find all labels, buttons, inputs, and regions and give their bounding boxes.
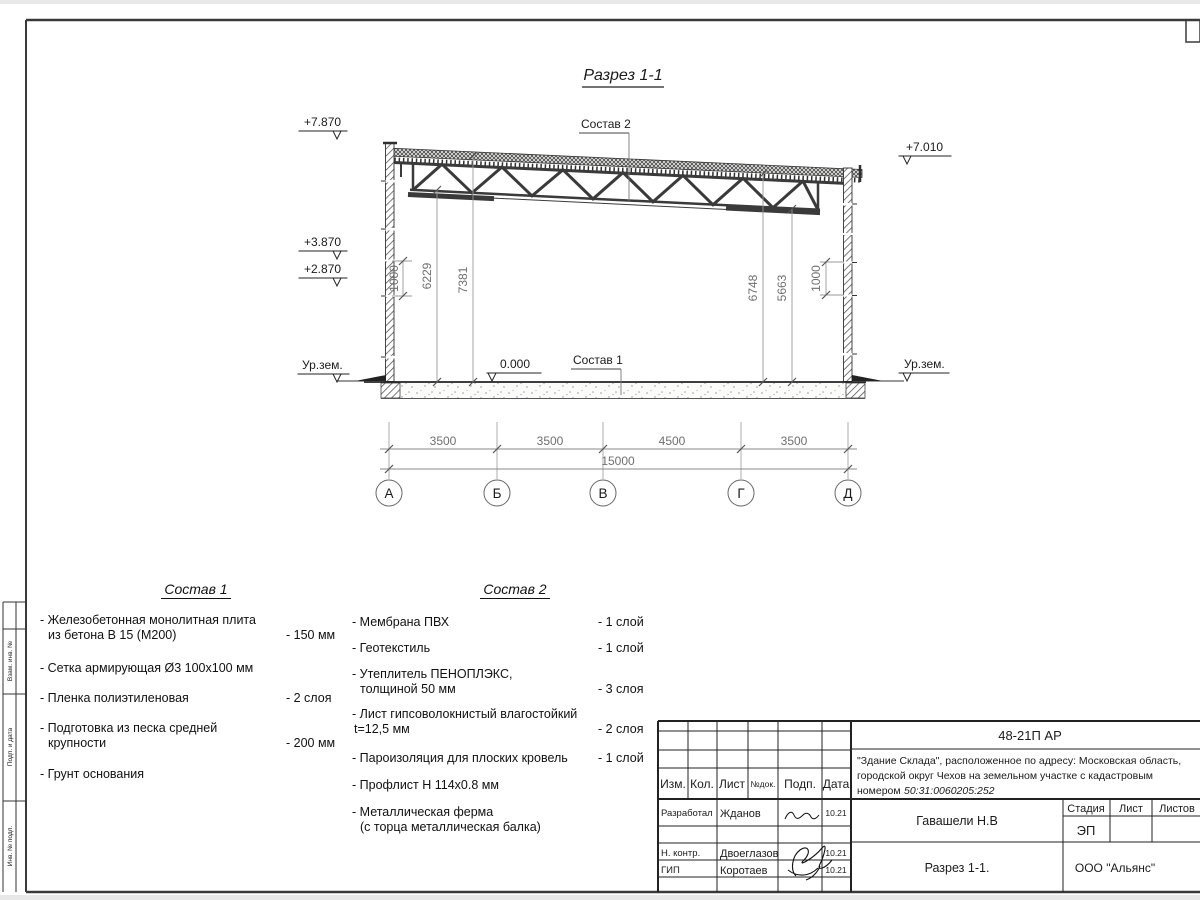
sostav2-item6-line1: - Профлист Н 114х0.8 мм: [352, 778, 598, 793]
sostav1-item3-line1: - Пленка полиэтиленовая: [40, 691, 286, 706]
ref-sostav2-label: Состав 2: [581, 117, 631, 131]
axis-label-b: Б: [493, 486, 502, 501]
tb-object-line3-prefix: номером: [857, 785, 901, 797]
tb-sheets-col: Листов: [1159, 803, 1195, 815]
zero-level-mark: 0.000: [500, 357, 530, 371]
total-dim: 15000: [601, 454, 635, 468]
tb-col-podp: Подп.: [784, 777, 816, 791]
list-item: - Подготовка из песка средней крупности …: [40, 721, 352, 751]
sostav2-item4-line1: - Лист гипсоволокнистый влагостойкий: [352, 707, 598, 722]
sostav2-item7-line1: - Металлическая ферма: [352, 805, 598, 820]
sostav1-item1-line1: - Железобетонная монолитная плита: [40, 613, 286, 628]
chain-dim-3: 4500: [659, 434, 686, 448]
tb-cadastre-number: 50:31:0060205:252: [904, 785, 995, 797]
ground-label-left: Ур.зем.: [302, 358, 343, 372]
elev-2870: +2.870: [304, 262, 341, 276]
frame-corner-box: [1186, 20, 1200, 42]
sostav1-item3-value: - 2 слоя: [286, 691, 331, 706]
tb-col-data: Дата: [823, 777, 850, 791]
sostav1-heading: Состав 1: [40, 582, 352, 597]
sostav1-item1-value: - 150 мм: [286, 628, 335, 643]
tb-approved-by: Гавашели Н.В: [916, 814, 998, 828]
tb-object-line1: "Здание Склада", расположенное по адресу…: [857, 755, 1181, 767]
tb-organization: ООО "Альянс": [1075, 861, 1155, 875]
list-item: - Лист гипсоволокнистый влагостойкий t=1…: [352, 707, 678, 737]
list-item: - Металлическая ферма (с торца металличе…: [352, 805, 678, 835]
tb-name-zhdanov: Жданов: [720, 808, 761, 820]
sostav1-note: Состав 1 - Железобетонная монолитная пли…: [40, 582, 352, 782]
sostav2-item2-line1: - Геотекстиль: [352, 641, 598, 656]
tb-stage-value: ЭП: [1077, 823, 1096, 838]
sostav1-item2-line1: - Сетка армирующая Ø3 100х100 мм: [40, 661, 286, 676]
vertical-dimensions: 1000 6229 7381 6748 5663 1000: [387, 152, 844, 386]
list-item: - Грунт основания: [40, 767, 352, 782]
list-item: - Мембрана ПВХ - 1 слой: [352, 615, 678, 630]
chain-dim-1: 3500: [430, 434, 457, 448]
chain-dim-2: 3500: [537, 434, 564, 448]
sostav2-item2-value: - 1 слой: [598, 641, 644, 656]
frame-label-inv: Инв. № подл.: [7, 826, 14, 867]
vdim-5663: 5663: [775, 274, 789, 301]
vdim-6748: 6748: [746, 274, 760, 301]
axis-label-g: Г: [737, 486, 745, 501]
sostav1-item1-line2: из бетона В 15 (М200): [40, 628, 286, 643]
axis-label-v: В: [598, 486, 607, 501]
vdim-1000-left: 1000: [387, 265, 401, 292]
list-item: - Пароизоляция для плоских кровель - 1 с…: [352, 751, 678, 766]
ground-label-right: Ур.зем.: [904, 357, 945, 371]
vdim-7381: 7381: [456, 266, 470, 293]
tb-col-kol: Кол.: [690, 777, 714, 791]
vdim-1000-right: 1000: [809, 265, 823, 292]
sostav2-item5-value: - 1 слой: [598, 751, 644, 766]
vdim-6229: 6229: [420, 262, 434, 289]
tb-stage-col: Стадия: [1067, 803, 1105, 815]
list-item: - Профлист Н 114х0.8 мм: [352, 778, 678, 793]
frame-label-vzam: Взам. инв. №: [7, 641, 14, 681]
view-title: Разрез 1-1: [582, 67, 664, 87]
sostav2-item4-line2: t=12,5 мм: [352, 722, 598, 737]
tb-name-dvoeglazov: Двоеглазов: [720, 848, 779, 860]
ground-wedge-right: [852, 375, 883, 381]
ground-wedge-left: [355, 375, 386, 381]
sostav2-heading: Состав 2: [352, 582, 678, 597]
tb-date-3: 10.21: [825, 865, 847, 875]
tb-sheet-name: Разрез 1-1.: [925, 861, 990, 875]
axis-dimensions: 3500 3500 4500 3500 15000 А Б В Г Д: [376, 422, 861, 506]
sostav1-item4-line2: крупности: [40, 736, 286, 751]
left-wall: [381, 143, 397, 382]
drawing-sheet: Взам. инв. № Подп. и дата Инв. № подл. Р…: [0, 4, 1200, 895]
sostav2-item3-line2: толщиной 50 мм: [352, 682, 598, 697]
sostav2-title: Состав 2: [480, 581, 549, 599]
sostav2-item3-line1: - Утеплитель ПЕНОПЛЭКС,: [352, 667, 598, 682]
tb-col-list: Лист: [719, 777, 746, 791]
sostav1-item4-value: - 200 мм: [286, 736, 335, 751]
tb-date-1: 10.21: [825, 808, 847, 818]
tb-role-gip: ГИП: [661, 865, 680, 876]
list-item: - Утеплитель ПЕНОПЛЭКС, толщиной 50 мм -…: [352, 667, 678, 697]
axis-label-a: А: [384, 486, 393, 501]
sostav2-item1-line1: - Мембрана ПВХ: [352, 615, 598, 630]
list-item: - Геотекстиль - 1 слой: [352, 641, 678, 656]
floor-slab: [336, 375, 904, 399]
sostav1-item4-line1: - Подготовка из песка средней: [40, 721, 286, 736]
ref-sostav1-label: Состав 1: [573, 353, 623, 367]
sostav2-item1-value: - 1 слой: [598, 615, 644, 630]
elev-7870: +7.870: [304, 115, 341, 129]
tb-name-korotaev: Коротаев: [720, 865, 768, 877]
tb-col-ndok: №док.: [751, 779, 776, 789]
axis-label-d: Д: [843, 486, 852, 501]
sostav2-note: Состав 2 - Мембрана ПВХ - 1 слой - Геоте…: [352, 582, 678, 835]
sostav2-item5-line1: - Пароизоляция для плоских кровель: [352, 751, 598, 766]
tb-role-nkontr: Н. контр.: [661, 848, 700, 859]
frame-side-column: Взам. инв. № Подп. и дата Инв. № подл.: [3, 602, 26, 892]
list-item: - Пленка полиэтиленовая - 2 слоя: [40, 691, 352, 706]
chain-dim-4: 3500: [781, 434, 808, 448]
right-wall: [843, 168, 857, 382]
title-block: Изм. Кол. Лист №док. Подп. Дата Разработ…: [658, 721, 1200, 892]
sostav2-item3-value: - 3 слоя: [598, 682, 643, 697]
elev-7010: +7.010: [906, 140, 943, 154]
sostav2-item4-value: - 2 слоя: [598, 722, 643, 737]
list-item: - Железобетонная монолитная плита из бет…: [40, 613, 352, 643]
tb-sheet-col: Лист: [1119, 803, 1143, 815]
elev-3870: +3.870: [304, 235, 341, 249]
sostav1-title: Состав 1: [161, 581, 230, 599]
tb-object-line2: городской округ Чехов на земельном участ…: [857, 770, 1153, 782]
frame-label-podp: Подп. и дата: [7, 727, 14, 766]
sostav2-item7-line2: (с торца металлическая балка): [352, 820, 598, 835]
signature-razrabotal: [785, 812, 819, 819]
list-item: - Сетка армирующая Ø3 100х100 мм: [40, 661, 352, 676]
tb-doc-code: 48-21П АР: [998, 728, 1062, 743]
view-title-text: Разрез 1-1: [583, 67, 662, 84]
sostav1-item5-line1: - Грунт основания: [40, 767, 286, 782]
tb-date-2: 10.21: [825, 848, 847, 858]
